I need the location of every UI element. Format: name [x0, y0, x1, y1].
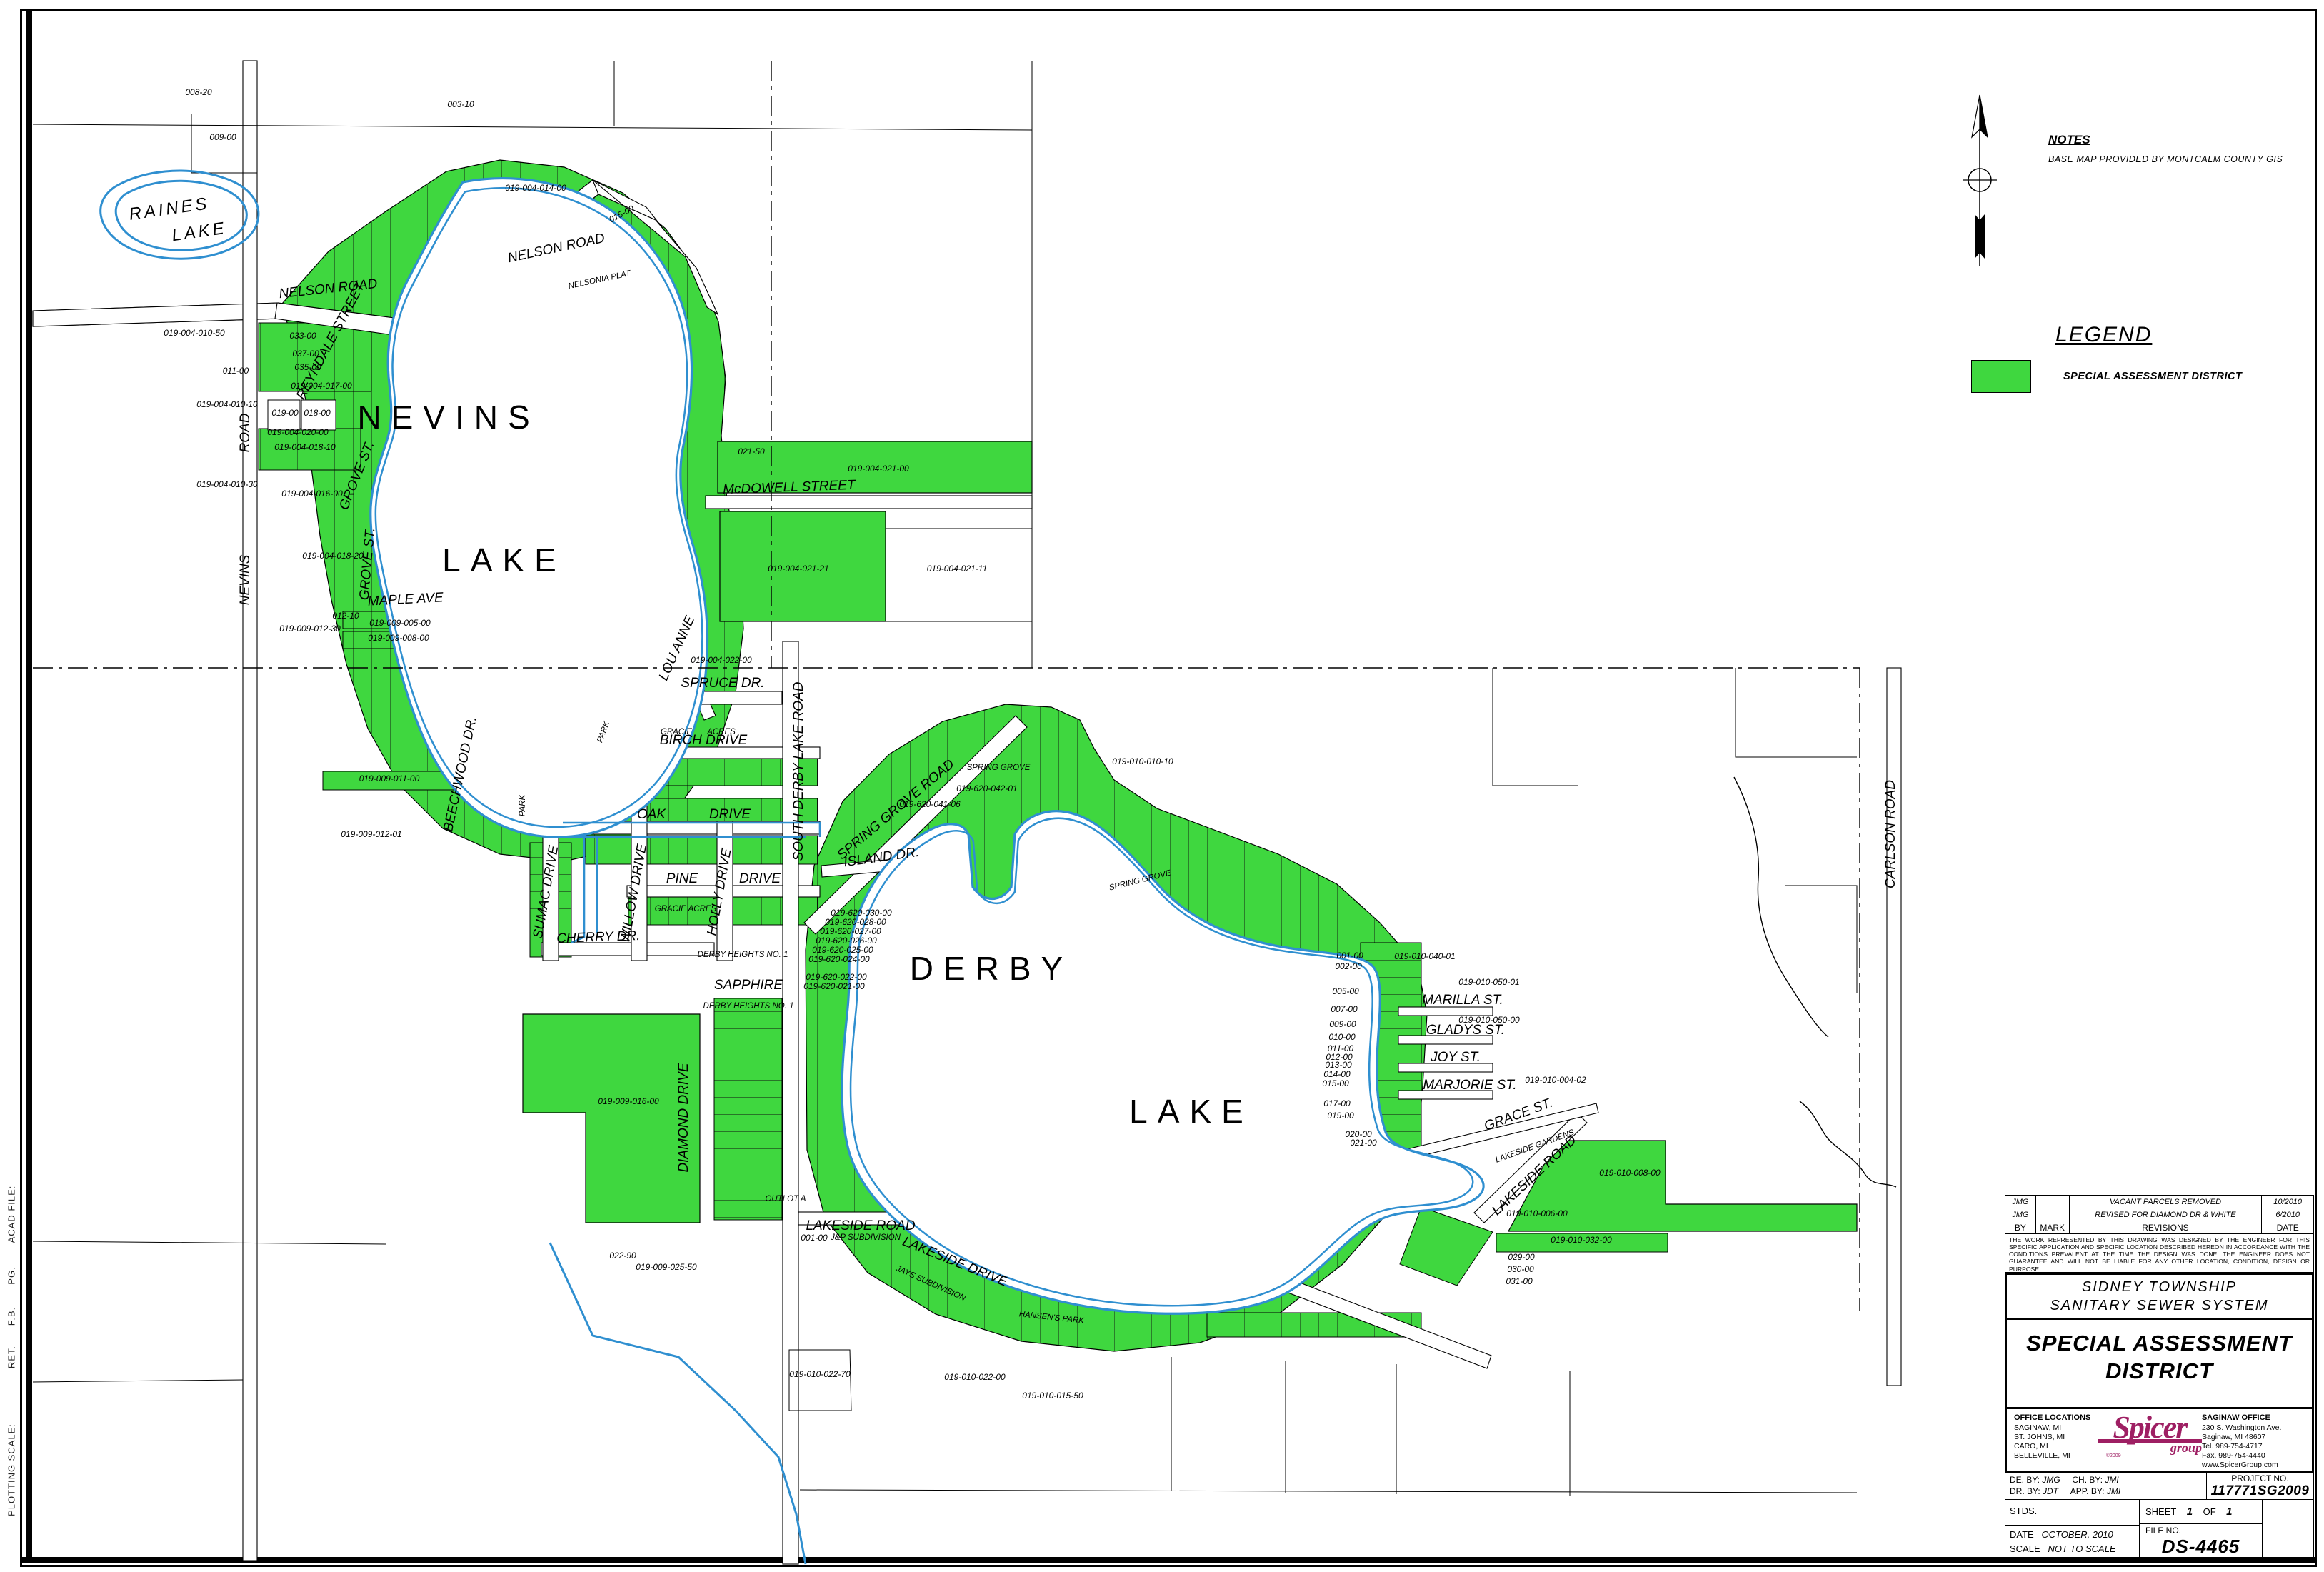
parcel-label: 005-00 [1332, 986, 1359, 996]
saginaw-office-line: Saginaw, MI 48607 [2202, 1433, 2265, 1441]
office-location: BELLEVILLE, MI [2014, 1451, 2070, 1460]
subdivision-label: ACRES [706, 728, 736, 736]
plan-sheet: ACAD FILE: PG. F.B. RET. PLOTTING SCALE: [0, 0, 2324, 1572]
parcel-label: 019-00 [271, 408, 299, 418]
scale-label: SCALE [2010, 1543, 2040, 1554]
revision-header-date: DATE [2262, 1221, 2313, 1233]
road-label: SPRUCE DR. [681, 676, 764, 691]
lake-label: LAKE [442, 541, 566, 579]
stream-southwest [550, 1243, 806, 1564]
parcel-label: 019-009-025-50 [636, 1262, 697, 1272]
title-block-spare-cell [2263, 1500, 2313, 1558]
sheet-label: SHEET [2145, 1506, 2176, 1517]
road-label: MARILLA ST. [1422, 993, 1503, 1008]
parcel-label: 011-00 [223, 366, 249, 376]
parcel-label: 019-004-010-50 [164, 328, 225, 338]
parcel-label: 018-00 [304, 408, 331, 418]
sheet-of-label: OF [2203, 1506, 2216, 1517]
parcel-label: 019-004-014-00 [505, 183, 566, 193]
date-label: DATE [2010, 1529, 2034, 1540]
parcel-label: 019-620-028-00 [825, 917, 886, 927]
north-arrow [1963, 95, 1997, 266]
parcel-label: 019-620-042-01 [956, 784, 1017, 793]
parcel-label: 007-00 [1331, 1004, 1358, 1014]
parcel-label: 009-00 [209, 132, 236, 142]
road-label: MARJORIE ST. [1423, 1078, 1516, 1093]
parcel-label: 029-00 [1508, 1252, 1535, 1262]
lake-label: LAKE [1129, 1093, 1253, 1130]
revision-header-description: REVISIONS [2070, 1221, 2263, 1233]
parcel-label: 019-620-024-00 [808, 954, 870, 964]
parcel-label: 014-00 [1323, 1069, 1351, 1079]
legend-district-label: SPECIAL ASSESSMENT DISTRICT [2063, 371, 2242, 382]
scale-value: NOT TO SCALE [2048, 1543, 2115, 1554]
parcel-label: 010-00 [1328, 1032, 1356, 1042]
parcel-label: 019-004-020-00 [267, 427, 329, 437]
parcel-label: 019-010-008-00 [1599, 1168, 1661, 1178]
road-label: ROAD [238, 413, 253, 452]
project-number-label: PROJECT NO. [2207, 1473, 2313, 1483]
checked-by-label: CH. BY: [2072, 1475, 2103, 1485]
revision-by: JMG [2005, 1196, 2036, 1208]
logo-copyright: ©2009 [2106, 1453, 2121, 1458]
office-locations-heading: OFFICE LOCATIONS [2014, 1413, 2090, 1422]
logo-wordmark: Spicer [2098, 1413, 2202, 1442]
lake-label: DERBY [910, 950, 1073, 987]
parcel-label: 019-010-022-70 [789, 1369, 851, 1379]
subdivision-label: DERBY HEIGHTS NO. 1 [703, 1002, 794, 1011]
district-derby-heights-column [714, 998, 782, 1220]
project-number-value: 117771SG2009 [2207, 1483, 2313, 1499]
office-location: ST. JOHNS, MI [2014, 1433, 2065, 1441]
road-label: DIAMOND DRIVE [676, 1063, 691, 1172]
title-block-bottom: STDS. DATE OCTOBER, 2010 SCALE NOT TO SC… [2005, 1500, 2314, 1558]
revision-mark [2036, 1196, 2070, 1208]
parcel-label: 031-00 [1506, 1276, 1533, 1286]
subdivision-label: J&P SUBDIVISION [830, 1233, 901, 1242]
revision-header-by: BY [2005, 1221, 2036, 1233]
parcel-label: 021-00 [1350, 1138, 1377, 1148]
spicer-group-logo: Spicer group ©2009 [2098, 1413, 2202, 1468]
parcel-label: 009-00 [1329, 1019, 1356, 1029]
parcel-label: 019-010-004-02 [1525, 1075, 1586, 1085]
parcel-label: 019-620-026-00 [816, 936, 877, 946]
subdivision-label: DERBY HEIGHTS NO. 1 [698, 951, 788, 959]
saginaw-office-line: Fax. 989-754-4440 [2202, 1451, 2265, 1460]
legend-district-swatch [1971, 360, 2031, 393]
project-title-line2: SANITARY SEWER SYSTEM [2050, 1296, 2268, 1315]
lake-label: NEVINS [357, 399, 539, 436]
parcel-label: 019-010-015-50 [1022, 1391, 1083, 1401]
credits-row: DE. BY: JMG CH. BY: JMI DR. BY: JDT APP.… [2005, 1473, 2314, 1500]
road-label: SOUTH DERBY LAKE ROAD [791, 681, 806, 861]
revision-description: REVISED FOR DIAMOND DR & WHITE [2070, 1208, 2263, 1221]
parcel-label: 033-00 [289, 331, 316, 341]
revision-mark [2036, 1208, 2070, 1221]
parcel-label: 019-004-018-10 [274, 442, 336, 452]
drawn-by-label: DR. BY: [2010, 1486, 2040, 1496]
legend-title: LEGEND [2055, 323, 2242, 347]
parcel-label: 019-004-018-20 [302, 551, 364, 561]
parcel-021-11-white [886, 529, 1032, 621]
parcel-label: 001-00 [1336, 951, 1363, 961]
road-label: PINE [666, 871, 698, 886]
notes-title: NOTES [2048, 133, 2283, 147]
district-diamond-block [523, 1014, 700, 1223]
parcel-label: 030-00 [1507, 1264, 1534, 1274]
project-number-cell: PROJECT NO. 117771SG2009 [2206, 1473, 2313, 1499]
sheet-title-line2: DISTRICT [2007, 1358, 2312, 1386]
road-label: CARLSON ROAD [1883, 780, 1898, 888]
revision-row: JMG VACANT PARCELS REMOVED 10/2010 [2005, 1195, 2314, 1208]
parcel-label: 022-90 [609, 1251, 636, 1261]
road-label: DRIVE [709, 807, 751, 822]
parcel-label: 019-010-032-00 [1551, 1235, 1612, 1245]
approved-by-value: JMI [2107, 1486, 2120, 1496]
revision-row: JMG REVISED FOR DIAMOND DR & WHITE 6/201… [2005, 1208, 2314, 1221]
parcel-label: 019-004-022-00 [691, 655, 752, 665]
road-label: DRIVE [739, 871, 781, 886]
subdivision-label: PARK [519, 793, 527, 816]
parcel-label: 019-00 [1327, 1111, 1354, 1121]
parcel-label: 019-010-050-00 [1458, 1015, 1520, 1025]
subdivision-label: OUTLOT A [765, 1195, 806, 1203]
notes-block: NOTES BASE MAP PROVIDED BY MONTCALM COUN… [2048, 133, 2283, 164]
saginaw-office-heading: SAGINAW OFFICE [2202, 1413, 2270, 1422]
revision-by: JMG [2005, 1208, 2036, 1221]
subdivision-label: GRACIE ACRES [655, 905, 717, 913]
parcel-label: 019-620-021-00 [803, 981, 865, 991]
parcel-label: 003-10 [447, 99, 474, 109]
subdivision-label: SPRING GROVE [967, 764, 1031, 772]
parcel-label: 015-00 [1322, 1078, 1349, 1088]
revision-header-row: BY MARK REVISIONS DATE [2005, 1221, 2314, 1233]
designed-by-value: JMG [2042, 1475, 2060, 1485]
stds-label: STDS. [2005, 1500, 2139, 1526]
revision-header-mark: MARK [2036, 1221, 2070, 1233]
engineer-disclaimer: THE WORK REPRESENTED BY THIS DRAWING WAS… [2005, 1233, 2314, 1273]
date-value: OCTOBER, 2010 [2042, 1529, 2113, 1540]
parcel-label: 002-00 [1335, 961, 1362, 971]
title-block: JMG VACANT PARCELS REMOVED 10/2010 JMG R… [2005, 1195, 2314, 1558]
parcel-label: 019-620-041-06 [899, 799, 961, 809]
parcel-label: 021-50 [738, 446, 765, 456]
legend-block: LEGEND SPECIAL ASSESSMENT DISTRICT [1971, 323, 2242, 393]
map-canvas: NEVINSLAKEDERBYLAKE RAINESLAKE NELSON RO… [0, 0, 2324, 1572]
revision-date: 6/2010 [2262, 1208, 2313, 1221]
parcel-label: 019-620-030-00 [831, 908, 892, 918]
parcel-label: 019-004-021-00 [848, 464, 909, 474]
parcel-label: 017-00 [1323, 1098, 1351, 1108]
parcel-label: 013-00 [1325, 1060, 1352, 1070]
parcel-label: 019-010-010-10 [1112, 756, 1173, 766]
parcel-label: 019-009-016-00 [598, 1096, 659, 1106]
saginaw-office-line: 230 S. Washington Ave. [2202, 1423, 2282, 1432]
checked-by-value: JMI [2105, 1475, 2118, 1485]
designed-by-label: DE. BY: [2010, 1475, 2040, 1485]
road-label: NEVINS [238, 554, 253, 605]
parcel-label: 019-004-017-00 [291, 381, 352, 391]
subdivision-label: GRACIE [661, 728, 692, 736]
parcel-label: 001-00 [801, 1233, 828, 1243]
road-label: GLADYS ST. [1426, 1023, 1505, 1038]
parcel-label: 035-00 [294, 362, 321, 372]
parcel-label: 019-009-012-30 [279, 624, 341, 634]
revision-description: VACANT PARCELS REMOVED [2070, 1196, 2263, 1208]
lake-label: LAKE [171, 219, 228, 246]
parcel-label: 019-010-006-00 [1506, 1208, 1568, 1218]
parcel-label: 019-010-022-00 [944, 1372, 1006, 1382]
parcel-label: 037-00 [292, 349, 319, 359]
road-label: SAPPHIRE [714, 978, 783, 993]
revision-date: 10/2010 [2262, 1196, 2313, 1208]
parcel-label: 019-010-040-01 [1394, 951, 1455, 961]
road-label: JOY ST. [1430, 1050, 1481, 1065]
parcel-label: 008-20 [185, 87, 212, 97]
project-title-line1: SIDNEY TOWNSHIP [2082, 1278, 2237, 1296]
approved-by-label: APP. BY: [2070, 1486, 2105, 1496]
saginaw-office: SAGINAW OFFICE 230 S. Washington Ave. Sa… [2202, 1413, 2306, 1468]
saginaw-office-website: www.SpicerGroup.com [2202, 1461, 2278, 1469]
sheet-title-line1: SPECIAL ASSESSMENT [2007, 1330, 2312, 1358]
project-title: SIDNEY TOWNSHIP SANITARY SEWER SYSTEM [2005, 1273, 2314, 1320]
office-block: OFFICE LOCATIONS SAGINAW, MI ST. JOHNS, … [2005, 1409, 2314, 1473]
parcel-label: 019-010-050-01 [1458, 977, 1519, 987]
drawn-by-value: JDT [2043, 1486, 2058, 1496]
sheet-title: SPECIAL ASSESSMENT DISTRICT [2005, 1320, 2314, 1409]
office-location: CARO, MI [2014, 1442, 2048, 1451]
lake-small-labels: RAINESLAKE [128, 194, 228, 245]
parcel-label: 019-004-021-11 [927, 564, 988, 574]
file-number-value: DS-4465 [2145, 1536, 2256, 1558]
district-se-gardens [1400, 1207, 1493, 1286]
parcel-label: 019-009-012-01 [341, 829, 401, 839]
saginaw-office-line: Tel. 989-754-4717 [2202, 1442, 2263, 1451]
parcel-label: 019-004-010-10 [196, 399, 258, 409]
office-location: SAGINAW, MI [2014, 1423, 2061, 1432]
parcel-label: 019-620-022-00 [806, 972, 867, 982]
parcel-label: 019-004-016-00 [281, 489, 343, 499]
notes-body: BASE MAP PROVIDED BY MONTCALM COUNTY GIS [2048, 154, 2283, 164]
parcel-label: 019-620-025-00 [812, 945, 873, 955]
parcel-label: 019-004-021-21 [768, 564, 828, 574]
road-label: OAK [637, 807, 666, 822]
file-number-label: FILE NO. [2145, 1526, 2181, 1536]
parcel-label: 019-009-011-00 [359, 774, 420, 784]
road-label: LAKESIDE ROAD [806, 1218, 915, 1233]
office-locations: OFFICE LOCATIONS SAGINAW, MI ST. JOHNS, … [2014, 1413, 2098, 1468]
parcel-label: 019-004-010-30 [196, 479, 258, 489]
lake-label: RAINES [128, 194, 211, 224]
parcel-label: 012-10 [332, 611, 359, 621]
sheet-total: 1 [2226, 1506, 2232, 1518]
parcel-label: 019-620-027-00 [820, 926, 881, 936]
sheet-number: 1 [2187, 1506, 2193, 1518]
parcel-label: 019-009-005-00 [369, 618, 431, 628]
parcel-label: 019-009-008-00 [368, 633, 429, 643]
